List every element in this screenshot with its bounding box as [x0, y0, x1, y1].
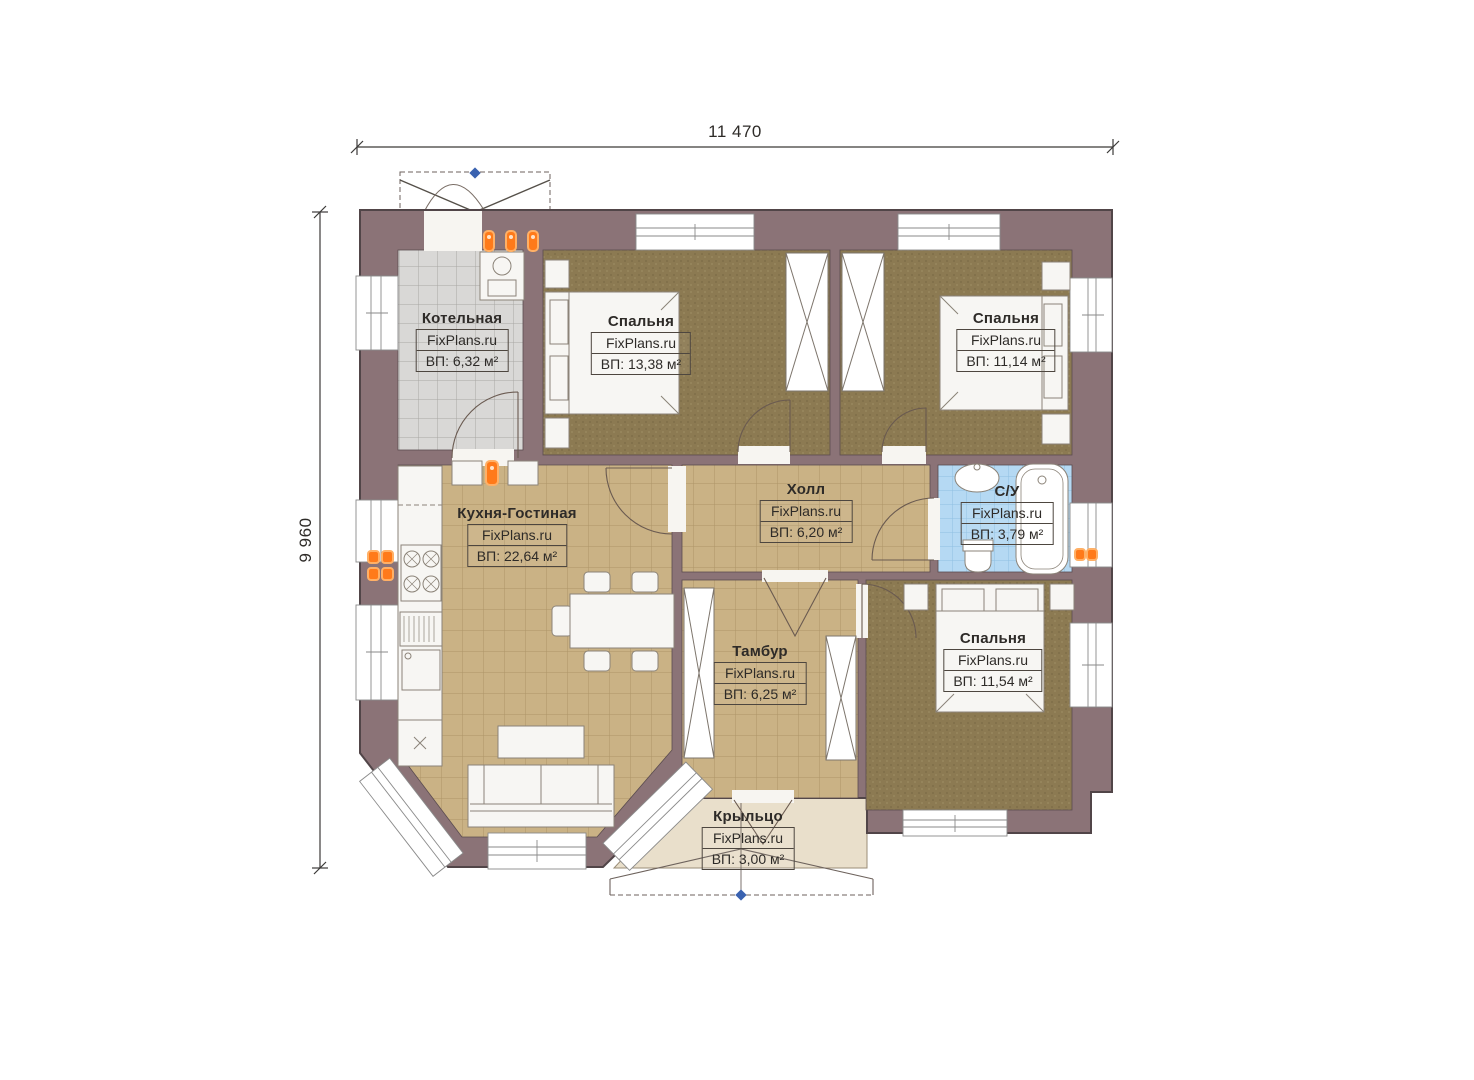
room-brand: FixPlans.ru [761, 501, 852, 521]
room-brand: FixPlans.ru [944, 650, 1041, 670]
room-area: ВП: 6,32 м² [417, 350, 508, 371]
room-area: ВП: 3,00 м² [703, 848, 794, 869]
room-area: ВП: 22,64 м² [468, 545, 566, 566]
room-name: Котельная [416, 310, 509, 327]
room-brand: FixPlans.ru [417, 330, 508, 350]
room-name: Крыльцо [702, 808, 795, 825]
corner-cabinet [398, 720, 442, 766]
door-opening-hall-bedroom2 [882, 446, 926, 464]
dimension-width-label: 11 470 [708, 122, 762, 142]
room-area: ВП: 11,14 м² [957, 350, 1054, 371]
room-area: ВП: 6,20 м² [761, 521, 852, 542]
door-opening-hall-tambur [762, 570, 828, 582]
window-right-bedroom2 [1070, 278, 1112, 352]
room-area: ВП: 11,54 м² [944, 670, 1041, 691]
room-name: Тамбур [714, 643, 807, 660]
door-opening-kitchen-hall [668, 466, 686, 532]
door-opening-entrance-boiler [424, 211, 482, 251]
room-label-tambur: Тамбур FixPlans.ru ВП: 6,25 м² [714, 643, 807, 705]
water-heater [480, 252, 524, 300]
room-label-bathroom: С/У FixPlans.ru ВП: 3,79 м² [961, 483, 1054, 545]
wardrobe-bedroom1 [786, 253, 828, 391]
door-opening-hall-bathroom [928, 498, 940, 560]
window-bottom-bedroom3 [903, 810, 1007, 836]
window-bay-bottom [488, 833, 586, 869]
room-area: ВП: 6,25 м² [715, 683, 806, 704]
room-name: Спальня [956, 310, 1055, 327]
window-left-boiler [356, 276, 398, 350]
room-name: Холл [760, 481, 853, 498]
room-label-bedroom3: Спальня FixPlans.ru ВП: 11,54 м² [943, 630, 1042, 692]
window-top-bedroom2 [898, 214, 1000, 250]
survey-marker-icon [469, 167, 480, 178]
room-area: ВП: 3,79 м² [962, 523, 1053, 544]
floor-plan-page: 11 470 9 960 Котельная FixPlans.ru ВП: 6… [0, 0, 1474, 1080]
room-area: ВП: 13,38 м² [592, 353, 690, 374]
sofa [468, 765, 614, 827]
room-brand: FixPlans.ru [468, 525, 566, 545]
floor-plan-drawing [0, 0, 1474, 1080]
room-label-kitchen: Кухня-Гостиная FixPlans.ru ВП: 22,64 м² [457, 505, 576, 567]
window-right-bedroom3 [1070, 623, 1112, 707]
canopy-roof [400, 167, 550, 212]
kitchen-counter [398, 466, 442, 766]
room-brand: FixPlans.ru [957, 330, 1054, 350]
room-brand: FixPlans.ru [962, 503, 1053, 523]
survey-marker-icon [735, 889, 746, 900]
room-label-hall: Холл FixPlans.ru ВП: 6,20 м² [760, 481, 853, 543]
room-name: Кухня-Гостиная [457, 505, 576, 522]
room-label-bedroom2: Спальня FixPlans.ru ВП: 11,14 м² [956, 310, 1055, 372]
window-top-bedroom1 [636, 214, 754, 250]
room-brand: FixPlans.ru [592, 333, 690, 353]
window-left-kitchen-2 [356, 605, 398, 700]
wardrobe-tambur-left [684, 588, 714, 758]
room-brand: FixPlans.ru [703, 828, 794, 848]
door-opening-tambur-porch [732, 790, 794, 803]
room-label-boiler: Котельная FixPlans.ru ВП: 6,32 м² [416, 310, 509, 372]
room-label-porch: Крыльцо FixPlans.ru ВП: 3,00 м² [702, 808, 795, 870]
vent-icon-kitchen-wall-top [486, 461, 498, 485]
room-name: Спальня [591, 313, 691, 330]
room-name: Спальня [943, 630, 1042, 647]
room-name: С/У [961, 483, 1054, 500]
room-brand: FixPlans.ru [715, 663, 806, 683]
door-opening-hall-bedroom1 [738, 446, 790, 464]
room-label-bedroom1: Спальня FixPlans.ru ВП: 13,38 м² [591, 313, 691, 375]
wardrobe-tambur-right [826, 636, 856, 760]
dimension-height-label: 9 960 [296, 517, 316, 562]
wardrobe-bedroom2 [842, 253, 884, 391]
coffee-table [498, 726, 584, 758]
vent-icon-top-wall [484, 231, 538, 251]
